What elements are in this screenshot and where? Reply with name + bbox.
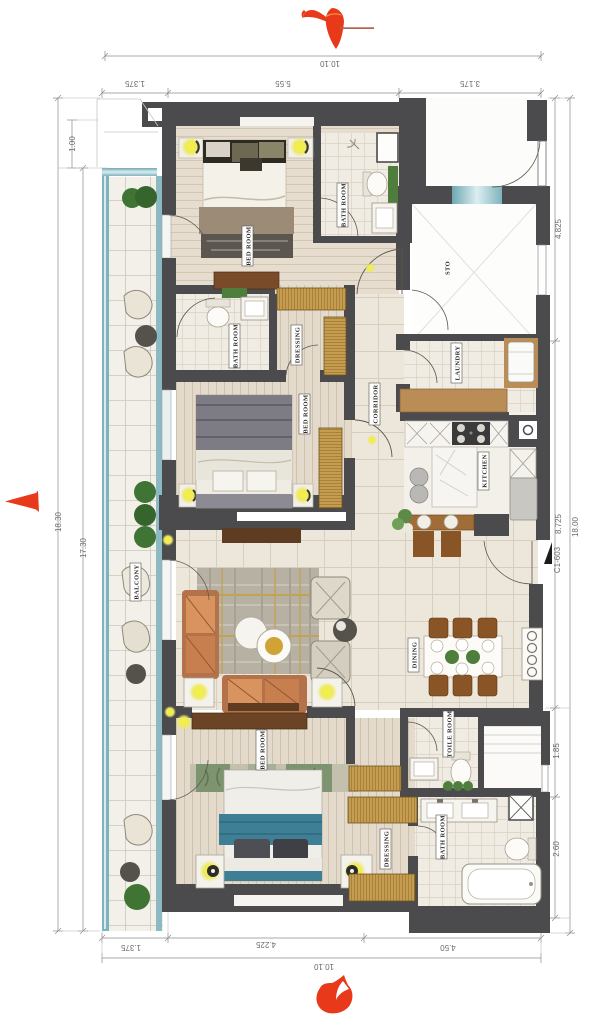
svg-text:TOILE ROOM: TOILE ROOM [447,710,454,757]
svg-text:BATH ROOM: BATH ROOM [233,324,240,368]
svg-text:18.00: 18.00 [571,516,580,537]
svg-text:LAUNDRY: LAUNDRY [455,345,462,380]
svg-text:BATH ROOM: BATH ROOM [440,815,447,859]
svg-text:10.10: 10.10 [313,962,334,971]
svg-text:5.55: 5.55 [275,79,291,88]
svg-text:3.175: 3.175 [459,79,480,88]
svg-text:BED ROOM: BED ROOM [303,394,310,433]
svg-text:CORRIDOR: CORRIDOR [373,384,380,423]
svg-text:4.825: 4.825 [554,218,563,239]
svg-text:1.85: 1.85 [552,743,561,759]
svg-text:18.30: 18.30 [54,511,63,532]
svg-text:BED ROOM: BED ROOM [260,730,267,769]
svg-text:1.375: 1.375 [120,943,141,952]
svg-text:STO: STO [445,261,452,275]
svg-text:4.50: 4.50 [440,943,456,952]
svg-text:KITCHEN: KITCHEN [482,454,489,488]
svg-text:DINING: DINING [412,642,419,669]
svg-text:2.60: 2.60 [552,841,561,857]
svg-text:1.375: 1.375 [124,79,145,88]
svg-text:BATH ROOM: BATH ROOM [341,183,348,227]
svg-text:BALCONY: BALCONY [134,564,141,599]
svg-text:BED ROOM: BED ROOM [246,226,253,265]
svg-text:DRESSING: DRESSING [384,831,391,867]
svg-text:1.00: 1.00 [68,136,77,152]
svg-text:DRESSING: DRESSING [295,327,302,363]
svg-text:8.725: 8.725 [554,513,563,534]
svg-text:4.225: 4.225 [255,940,276,949]
svg-text:10.10: 10.10 [319,59,340,68]
svg-text:C1-603: C1-603 [553,546,562,573]
svg-text:17.30: 17.30 [79,537,88,558]
